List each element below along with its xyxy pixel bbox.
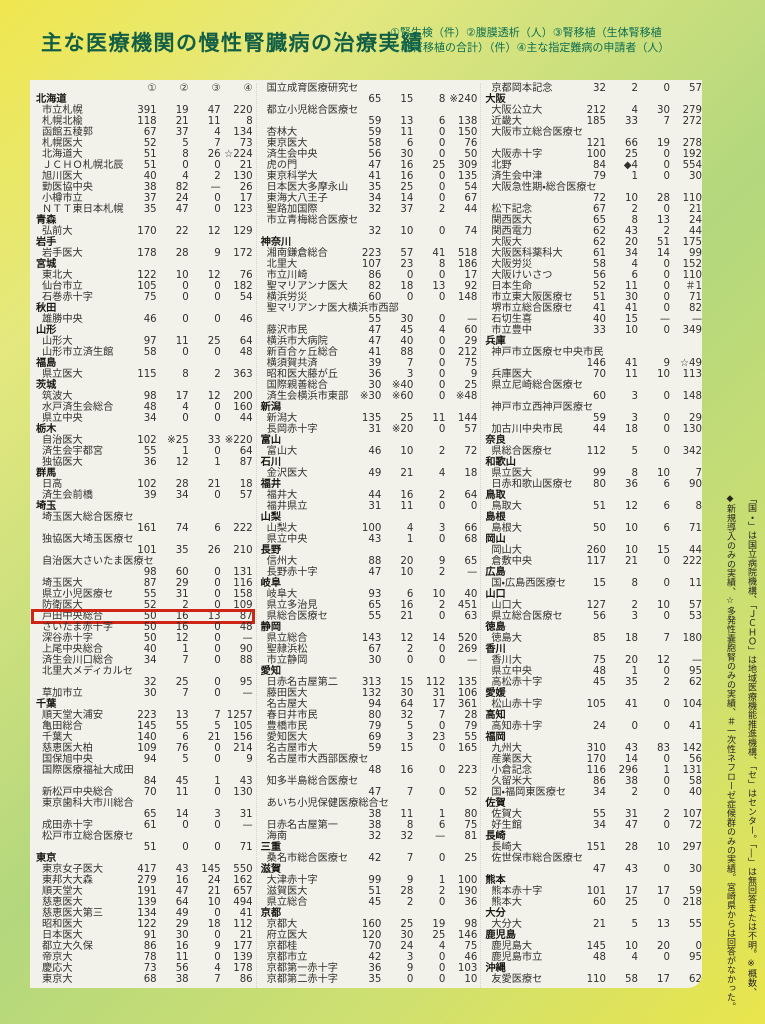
value-group: 721028110 [574, 193, 702, 204]
value-col-2: 56 [157, 963, 189, 974]
hospital-name: 名古屋市大 [267, 743, 318, 754]
value-col-2: 8 [381, 820, 413, 831]
table-row: 九州大3104383142 [485, 743, 702, 754]
hospital-name: 千葉大 [42, 732, 73, 743]
value-col-1: 21 [574, 919, 606, 930]
value-group: 5010671 [574, 523, 702, 534]
value-group: 477052 [349, 787, 477, 798]
value-group: 311100 [349, 501, 477, 512]
prefecture-label: 鹿児島 [485, 930, 702, 941]
value-group: 350010 [349, 974, 477, 985]
value-col-1: 160 [349, 919, 381, 930]
hospital-name: 加古川中央市民 [491, 424, 562, 435]
table-row: 東京科学大41160135 [261, 171, 478, 182]
value-col-4: 87 [221, 611, 253, 622]
value-col-4: — [221, 633, 253, 644]
value-group: 109760214 [125, 743, 253, 754]
value-col-3: 2 [638, 226, 670, 237]
value-group: 347088 [125, 655, 253, 666]
hospital-name: 福井大 [267, 490, 298, 501]
value-col-1: 73 [125, 963, 157, 974]
value-col-2: 10 [606, 523, 638, 534]
hospital-name: 堺市立総合医療セ [491, 303, 573, 314]
value-col-3: 0 [413, 138, 445, 149]
value-col-4: 116 [221, 578, 253, 589]
value-col-2: 16 [157, 875, 189, 886]
value-col-4: 88 [221, 655, 253, 666]
value-group: 97112564 [125, 336, 253, 347]
hospital-name: 藤沢市民 [267, 325, 308, 336]
value-col-4: 71 [221, 842, 253, 853]
value-col-3: 0 [413, 501, 445, 512]
value-col-1: 91 [125, 930, 157, 941]
value-col-2: 21 [606, 556, 638, 567]
value-group: 1396410494 [125, 897, 253, 908]
table-row: 東海大八王子3414067 [261, 193, 478, 204]
value-col-1: 118 [125, 116, 157, 127]
table-row: 仙台市立10500182 [36, 281, 253, 292]
value-col-4: 135 [445, 171, 477, 182]
value-col-2: 13 [157, 710, 189, 721]
hospital-name: 大阪市立総合医療セ [491, 127, 583, 138]
value-col-1: 39 [349, 358, 381, 369]
value-group: 110581762 [574, 974, 702, 985]
value-col-3: 10 [189, 897, 221, 908]
table-row: 信州大8820965 [261, 556, 478, 567]
value-group: 525773 [125, 138, 253, 149]
value-col-3: 0 [638, 204, 670, 215]
value-col-3: 0 [638, 303, 670, 314]
value-col-1: 51 [349, 886, 381, 897]
hospital-name: 埼玉医大総合医療セ [42, 512, 134, 523]
hospital-name: 聖隷浜松 [267, 644, 308, 655]
value-col-3: 21 [189, 732, 221, 743]
hospital-name: 県立総合医療セ [491, 611, 562, 622]
value-col-4: 146 [445, 930, 477, 941]
value-col-2: 18 [606, 633, 638, 644]
value-group: 86169177 [125, 941, 253, 952]
table-row: 新松戸中央総合70110130 [36, 787, 253, 798]
value-col-3: 24 [189, 875, 221, 886]
value-col-1: 65 [349, 94, 381, 105]
table-row: 岐阜大9361040 [261, 589, 478, 600]
value-col-4: 361 [445, 699, 477, 710]
value-col-2: 10 [606, 193, 638, 204]
prefecture-label: 沖縄 [485, 963, 702, 974]
value-col-4: 64 [221, 446, 253, 457]
value-group: 100250192 [574, 149, 702, 160]
hospital-name: 松戸市立総合医療セ [42, 831, 134, 842]
value-group: 50120— [125, 633, 253, 644]
value-col-3: 0 [413, 270, 445, 281]
table-row: 防衛医大5220109 [36, 600, 253, 611]
hospital-name: 新松戸中央総合 [42, 787, 113, 798]
hospital-name: 福井県立 [267, 501, 308, 512]
value-col-2: 10 [606, 545, 638, 556]
value-group: 1216619278 [574, 138, 702, 149]
table-row: 愛知医大6932355 [261, 732, 478, 743]
table-row: 県立中央431068 [261, 534, 478, 545]
value-group: 11582363 [125, 369, 253, 380]
table-row: 市立東大阪医療セ5130071 [485, 292, 702, 303]
value-col-1: 134 [125, 908, 157, 919]
value-col-4: 44 [670, 545, 702, 556]
value-col-2: 0 [157, 292, 189, 303]
table-row: 久留米大8638058 [485, 776, 702, 787]
hospital-name: 県立尼崎総合医療セ [491, 380, 583, 391]
value-group: 6720269 [349, 644, 477, 655]
value-col-1: 145 [125, 721, 157, 732]
hospital-name: 名古屋市大西部医療セ [267, 754, 369, 765]
column-header-1: ① [125, 83, 157, 94]
value-col-3: 0 [413, 149, 445, 160]
value-group: 6932355 [349, 732, 477, 743]
value-col-2: 45 [381, 325, 413, 336]
value-col-4: 148 [670, 391, 702, 402]
hospital-name: ＪＣＨＯ札幌北辰 [42, 160, 124, 171]
value-col-2: 11 [606, 369, 638, 380]
prefecture-label: 愛知 [261, 666, 478, 677]
hospital-name: 久留米大 [491, 776, 532, 787]
prefecture-label: 茨城 [36, 380, 253, 391]
value-col-3: 10 [638, 842, 670, 853]
value-col-1: 117 [574, 556, 606, 567]
value-group: 84◆40554 [574, 160, 702, 171]
value-group: 998107 [574, 468, 702, 479]
value-group: 65158※240 [349, 94, 477, 105]
value-group: 3724017 [125, 193, 253, 204]
value-col-3: 0 [413, 952, 445, 963]
value-col-1: 32 [574, 83, 606, 94]
hospital-name: 済生会宇都宮 [42, 446, 103, 457]
table-row: 虎の門471625309 [261, 160, 478, 171]
prefecture-label: 群馬 [36, 468, 253, 479]
column-header-2: ② [157, 83, 189, 94]
value-col-4: 95 [670, 952, 702, 963]
value-col-2: 1 [606, 666, 638, 677]
table-row: 国・福岡東医療セ342040 [485, 787, 702, 798]
value-col-1: 391 [125, 105, 157, 116]
value-col-3: 0 [189, 204, 221, 215]
table-row: 独協医大埼玉医療セ1013526210 [36, 534, 253, 556]
value-col-4: 0 [445, 501, 477, 512]
value-col-4: 57 [670, 600, 702, 611]
value-group: 6581324 [574, 215, 702, 226]
value-col-1: 44 [574, 424, 606, 435]
value-col-3: 0 [638, 281, 670, 292]
hospital-name: 横浜労災 [267, 292, 308, 303]
value-col-2: 4 [606, 259, 638, 270]
value-col-2: 14 [381, 193, 413, 204]
hospital-name: 知多半島総合医療セ [267, 776, 359, 787]
value-col-1: 121 [574, 138, 606, 149]
value-group: 17014056 [574, 754, 702, 765]
hospital-name: 桑名市総合医療セ [267, 853, 349, 864]
value-col-1: 70 [125, 787, 157, 798]
table-row: 聖路加国際3237244 [261, 204, 478, 215]
value-col-1: 84 [574, 160, 606, 171]
value-col-1: 100 [349, 523, 381, 534]
value-group: 35470123 [125, 204, 253, 215]
value-group: 160251998 [349, 919, 477, 930]
table-row: 滋賀医大51282190 [261, 886, 478, 897]
hospital-name: 旭川医大 [42, 171, 83, 182]
value-col-4: 8 [221, 116, 253, 127]
hospital-name: 東京女子医大 [42, 864, 103, 875]
table-row: 日本医大多摩永山3525054 [261, 182, 478, 193]
table-row: 国際医療福祉大成田8445143 [36, 765, 253, 787]
value-col-4: 57 [445, 424, 477, 435]
scanned-newspaper-page: 主な医療機関の慢性腎臓病の治療実績 ①腎生検（件）②腹膜透析（人）③腎移植（生体… [0, 0, 765, 1024]
table-row: 札幌医大525773 [36, 138, 253, 149]
hospital-name: 大阪公立大 [491, 105, 542, 116]
hospital-name: 県立中央 [491, 666, 532, 677]
value-col-3: 13 [638, 919, 670, 930]
value-col-3: 0 [189, 633, 221, 644]
value-group: 87290116 [125, 578, 253, 589]
value-col-2: 17 [157, 391, 189, 402]
value-group: 33100349 [574, 325, 702, 336]
value-group: 59110150 [349, 127, 477, 138]
value-col-2: 24 [157, 193, 189, 204]
value-col-4: 72 [670, 820, 702, 831]
value-col-1: 45 [349, 897, 381, 908]
value-col-3: 0 [189, 677, 221, 688]
value-col-3: 6 [413, 820, 445, 831]
table-row: 県立中央481095 [485, 666, 702, 677]
hospital-name: 佐世保市総合医療セ [491, 853, 583, 864]
hospital-name: 国・広島西医療セ [491, 578, 566, 589]
value-col-2: 16 [157, 622, 189, 633]
hospital-name: 防衛医大 [42, 600, 83, 611]
hospital-name: 済生会川口総合 [42, 655, 113, 666]
value-col-1: 51 [574, 292, 606, 303]
value-col-1: 105 [125, 281, 157, 292]
value-col-4: 67 [445, 193, 477, 204]
value-col-2: 12 [157, 457, 189, 468]
hospital-name: 岡山大 [491, 545, 522, 556]
value-col-3: 0 [189, 413, 221, 424]
value-col-2: 14 [606, 754, 638, 765]
value-col-2: 5 [381, 721, 413, 732]
value-col-3: 0 [638, 820, 670, 831]
value-col-4: 222 [670, 556, 702, 567]
value-group: 82181392 [349, 281, 477, 292]
hospital-name: 佐賀大 [491, 809, 522, 820]
value-group: 3232—81 [349, 831, 477, 842]
value-col-1: 35 [349, 182, 381, 193]
value-col-2: 15 [381, 94, 413, 105]
value-col-1: 55 [125, 446, 157, 457]
value-col-3: 0 [413, 182, 445, 193]
table-row: ＮＴＴ東日本札幌35470123 [36, 204, 253, 215]
table-row: 京都第二赤十字350010 [261, 974, 478, 985]
hospital-name: 国際医療福祉大成田 [42, 765, 134, 776]
value-col-2: 15 [606, 314, 638, 325]
value-col-4: 81 [445, 831, 477, 842]
value-col-4: 1257 [221, 710, 253, 721]
value-group: 672021 [574, 204, 702, 215]
table-row: 湘南鎌倉総合2235741518 [261, 248, 478, 259]
value-col-3: 0 [189, 688, 221, 699]
table-row: 福井県立311100 [261, 501, 478, 512]
value-col-3: 10 [638, 468, 670, 479]
value-group: 9361040 [349, 589, 477, 600]
value-col-4: 64 [221, 336, 253, 347]
value-col-3: 0 [189, 292, 221, 303]
table-row: 都立小児総合医療セ59136138 [261, 105, 478, 127]
value-group: 31315112135 [349, 677, 477, 688]
value-col-1: 49 [349, 468, 381, 479]
value-col-1: 122 [125, 919, 157, 930]
value-col-2: 15 [381, 743, 413, 754]
hospital-name: 市立静岡 [267, 655, 308, 666]
value-group: 31※20057 [349, 424, 477, 435]
hospital-name: 府立医大 [267, 930, 308, 941]
value-col-3: — [413, 831, 445, 842]
value-col-4: ＃1 [670, 281, 702, 292]
value-col-2: 21 [381, 468, 413, 479]
value-group: 481095 [574, 666, 702, 677]
value-col-4: 65 [445, 556, 477, 567]
table-row: 札幌北楡11821118 [36, 116, 253, 127]
value-col-3: 0 [413, 314, 445, 325]
value-col-2: 19 [157, 105, 189, 116]
value-col-2: 3 [381, 732, 413, 743]
table-row: 県立総合医療セ563053 [485, 611, 702, 622]
value-col-4: 40 [670, 787, 702, 798]
hospital-name: 友愛医療セ [491, 974, 542, 985]
table-row: 京都大160251998 [261, 919, 478, 930]
value-col-4: 80 [445, 809, 477, 820]
hospital-name: 済生会中津 [491, 171, 542, 182]
value-group: 41160135 [349, 171, 477, 182]
value-col-1: 69 [349, 732, 381, 743]
value-group: 36309 [349, 369, 477, 380]
value-col-1: 38 [349, 820, 381, 831]
hospital-name: 横須賀共済 [267, 358, 318, 369]
value-col-4: 30 [670, 171, 702, 182]
value-col-2: 82 [157, 182, 189, 193]
value-col-2: 8 [606, 215, 638, 226]
value-col-2: 10 [606, 325, 638, 336]
value-col-3: 0 [413, 193, 445, 204]
value-col-3: 2 [189, 171, 221, 182]
value-group: 4535262 [574, 677, 702, 688]
value-col-1: 110 [574, 974, 606, 985]
hospital-name: 大阪大 [491, 237, 522, 248]
hospital-name: 大阪労災 [491, 259, 532, 270]
table-row: 日本医大9130021 [36, 930, 253, 941]
value-col-1: 47 [349, 325, 381, 336]
value-col-2: 38 [157, 974, 189, 985]
value-col-4: 175 [670, 237, 702, 248]
value-col-3: 0 [189, 820, 221, 831]
value-col-4: 55 [445, 732, 477, 743]
table-row: 北海道大51826☆224 [36, 149, 253, 160]
table-row: 亀田総合145555105 [36, 721, 253, 732]
value-col-3: 0 [189, 589, 221, 600]
value-col-1: 31 [349, 424, 381, 435]
hospital-name: 大阪赤十字 [491, 149, 542, 160]
value-col-2: 6 [381, 138, 413, 149]
value-group: 5840152 [574, 259, 702, 270]
value-col-4: 162 [221, 875, 253, 886]
value-col-2: 6 [157, 732, 189, 743]
table-row: 名古屋大946417361 [261, 699, 478, 710]
table-row: 長崎大1512810297 [485, 842, 702, 853]
hospital-name: 鹿児島市立 [491, 952, 542, 963]
value-col-3: 4 [189, 963, 221, 974]
value-col-1: 67 [574, 204, 606, 215]
prefecture-label: 石川 [261, 457, 478, 468]
table-row: 国保旭中央94509 [36, 754, 253, 765]
value-col-4: ☆224 [221, 149, 253, 160]
hospital-name: 北海道大 [42, 149, 83, 160]
value-col-1: 52 [125, 600, 157, 611]
value-col-1: 80 [574, 479, 606, 490]
value-col-4: ※240 [445, 94, 477, 105]
table-row: 北野84◆40554 [485, 160, 702, 171]
value-col-1: 40 [125, 171, 157, 182]
hospital-name: 山口大 [491, 600, 522, 611]
table-row: 横須賀共済397075 [261, 358, 478, 369]
value-col-1: 55 [125, 589, 157, 600]
value-col-1: 46 [125, 314, 157, 325]
value-group: 3414067 [349, 193, 477, 204]
hospital-name: 昭和医大藤が丘 [267, 369, 338, 380]
hospital-name: 石切生喜 [491, 314, 532, 325]
value-col-3: 6 [413, 116, 445, 127]
value-col-2: 4 [606, 105, 638, 116]
hospital-name: 藤田医大 [267, 688, 308, 699]
value-group: 1004366 [349, 523, 477, 534]
hospital-name: 小倉記念 [491, 765, 532, 776]
value-col-4: 60 [445, 325, 477, 336]
value-col-4: 172 [221, 248, 253, 259]
hospital-name: 戸田中央総合 [42, 611, 103, 622]
value-col-2: 12 [157, 633, 189, 644]
hospital-name: 長野赤十字 [267, 567, 318, 578]
value-col-4: 46 [221, 314, 253, 325]
table-area: ①②③④北海道市立札幌3911947220札幌北楡11821118函館五稜郭67… [30, 80, 702, 988]
hospital-name: 京都大 [267, 919, 298, 930]
value-col-2: 10 [381, 226, 413, 237]
hospital-name: 産業医大 [491, 754, 532, 765]
table-row: 県立医大998107 [485, 468, 702, 479]
value-col-2: 0 [606, 721, 638, 732]
value-col-3: 13 [413, 281, 445, 292]
value-col-2: 8 [606, 468, 638, 479]
hospital-name: 杏林大 [267, 127, 298, 138]
value-col-4: — [221, 688, 253, 699]
table-row: 岡山大260101544 [485, 545, 702, 556]
value-col-1: 35 [349, 974, 381, 985]
table-row: 海南3232—81 [261, 831, 478, 842]
value-group: 3690103 [349, 963, 477, 974]
value-col-1: 36 [349, 369, 381, 380]
value-col-1: 99 [574, 468, 606, 479]
value-col-1: 33 [574, 325, 606, 336]
value-col-1: 32 [349, 831, 381, 842]
value-col-1: 94 [125, 754, 157, 765]
value-group: 586076 [349, 138, 477, 149]
table-row: 市立静岡3000— [261, 655, 478, 666]
table-row: 独協医大3612187 [36, 457, 253, 468]
hospital-name: 海南 [267, 831, 287, 842]
hospital-name: 草加市立 [42, 688, 83, 699]
table-row: 聖マリアンナ医大82181392 [261, 281, 478, 292]
